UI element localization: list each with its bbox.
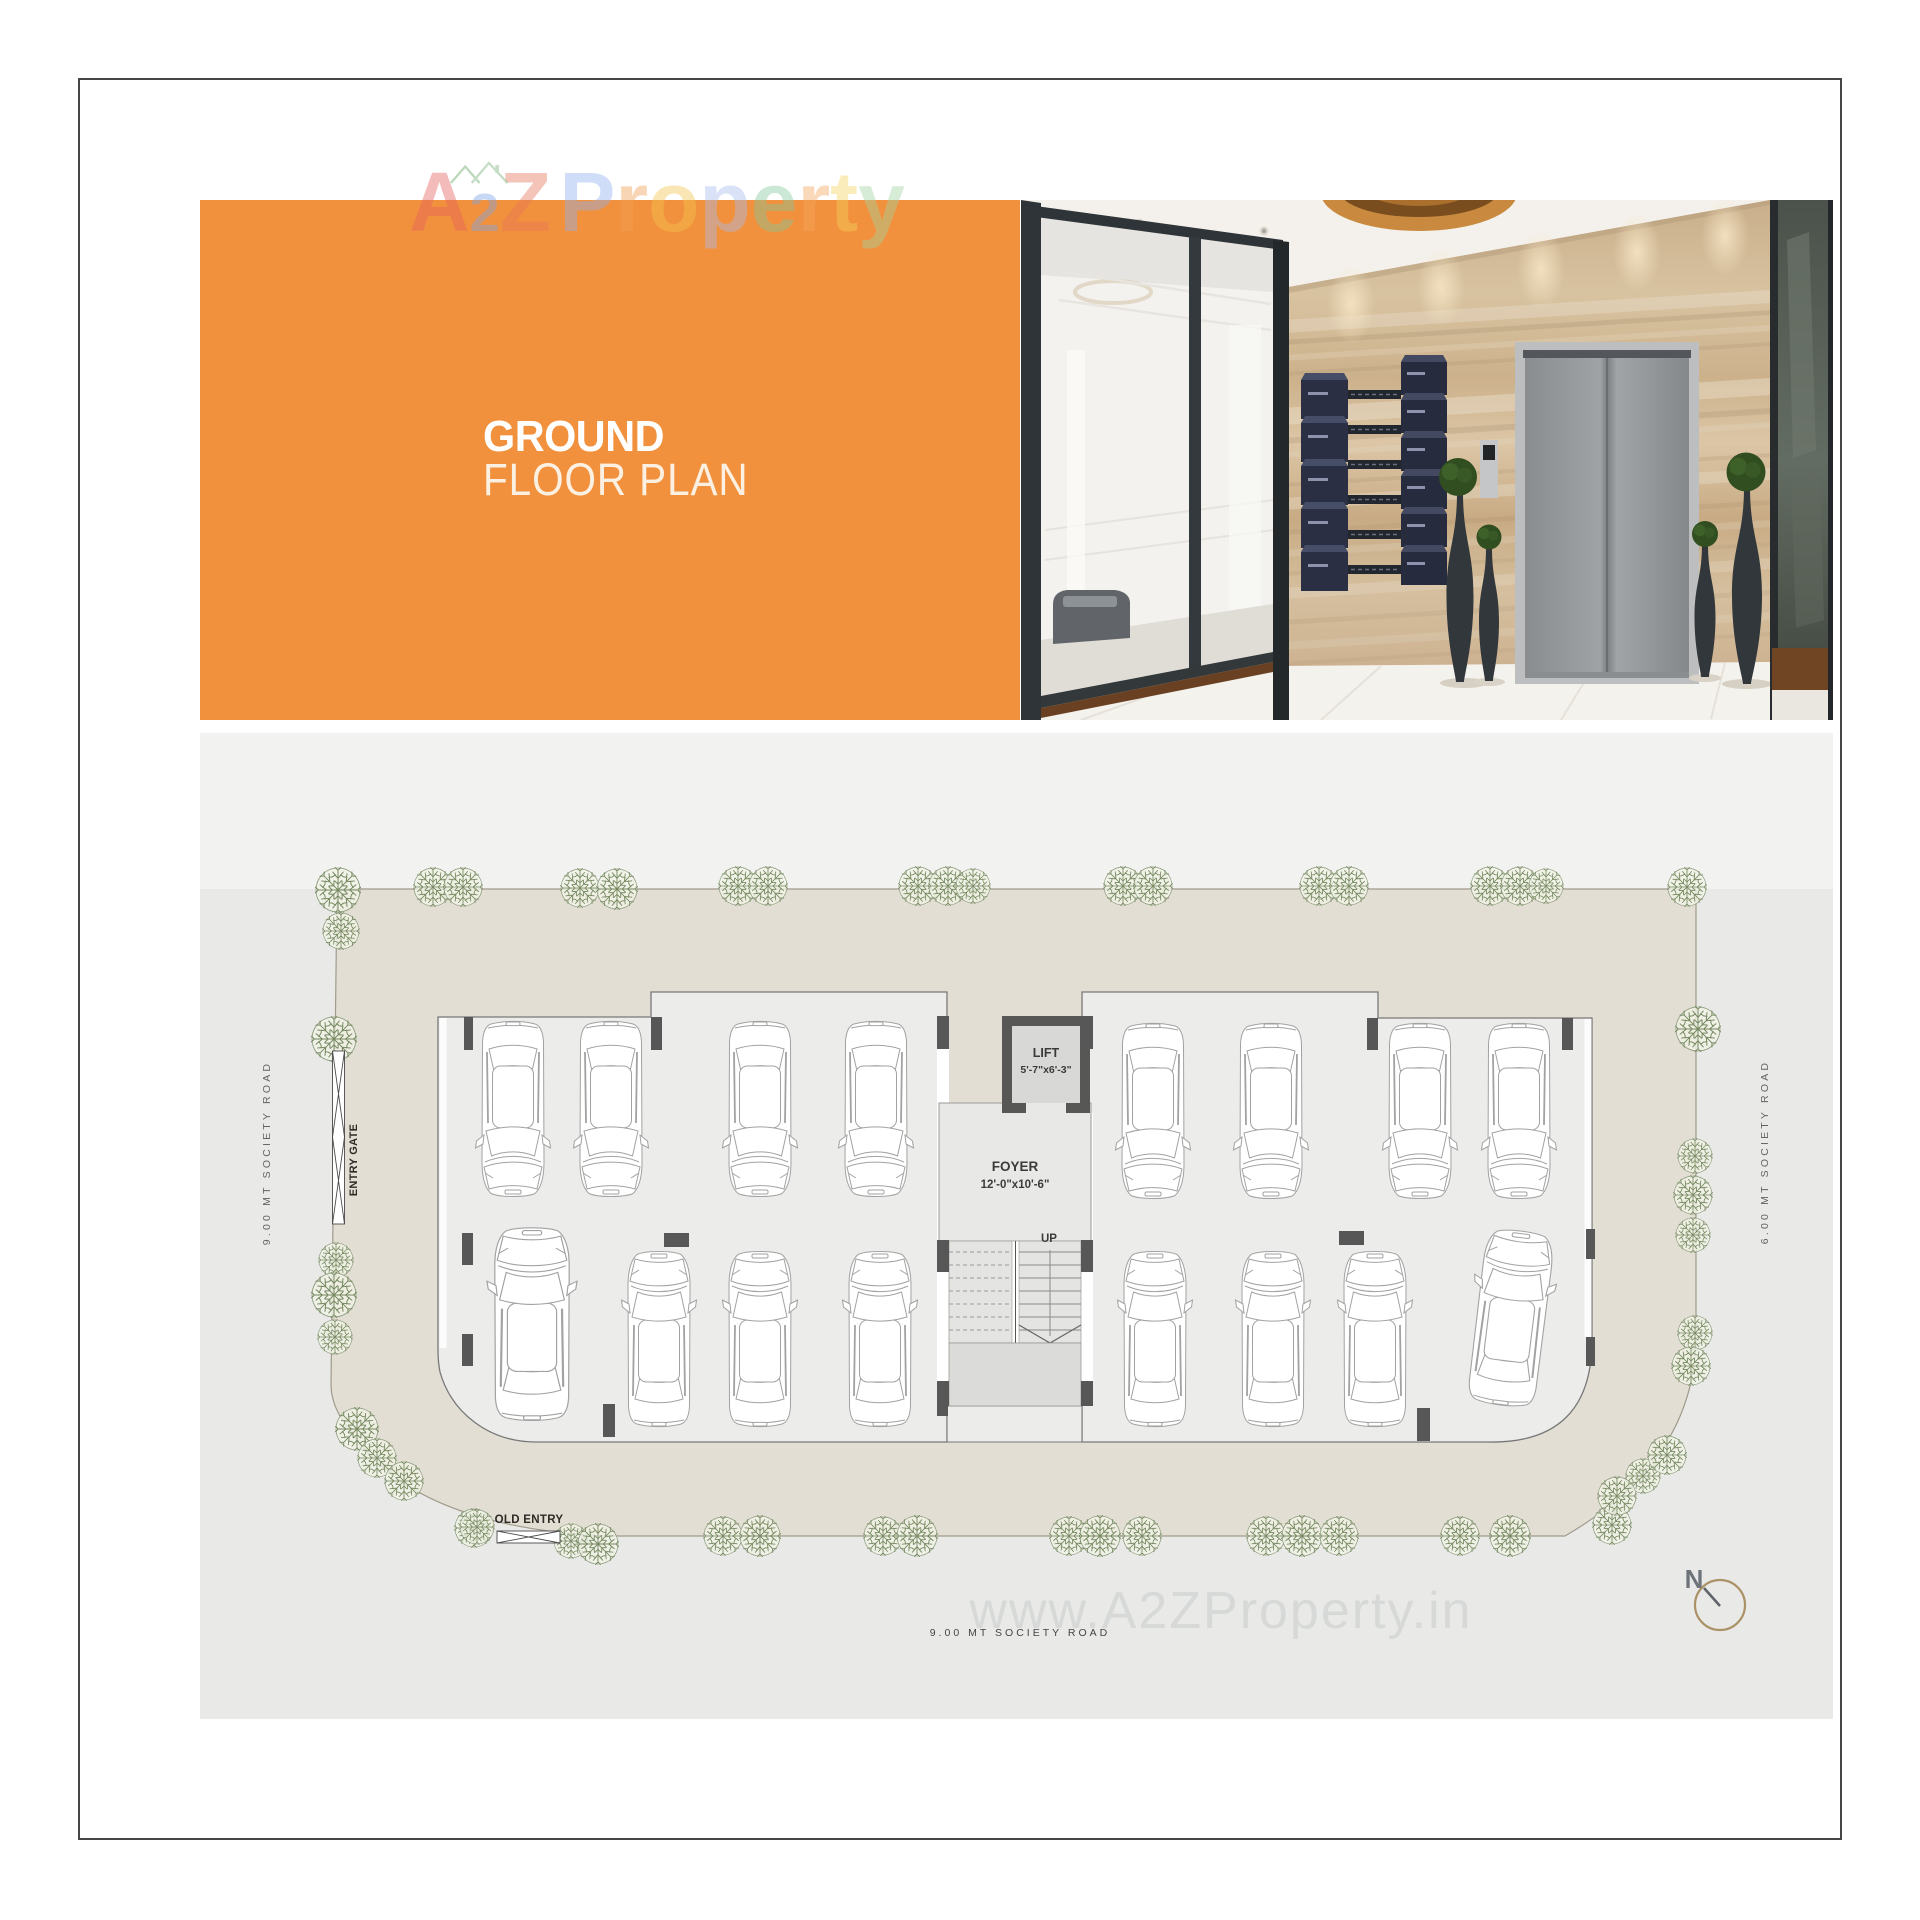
svg-text:9.00 MT SOCIETY ROAD: 9.00 MT SOCIETY ROAD — [261, 1061, 273, 1245]
svg-text:ENTRY GATE: ENTRY GATE — [348, 1124, 360, 1196]
svg-text:FOYER: FOYER — [992, 1159, 1039, 1174]
svg-text:www.A2ZProperty.in: www.A2ZProperty.in — [968, 1582, 1472, 1640]
svg-text:LIFT: LIFT — [1033, 1046, 1060, 1060]
svg-text:5'-7"x6'-3": 5'-7"x6'-3" — [1020, 1064, 1071, 1076]
svg-text:6.00 MT SOCIETY ROAD: 6.00 MT SOCIETY ROAD — [1759, 1060, 1771, 1244]
svg-text:OLD ENTRY: OLD ENTRY — [495, 1514, 564, 1526]
svg-text:12'-0"x10'-6": 12'-0"x10'-6" — [981, 1179, 1050, 1191]
svg-text:N: N — [1685, 1564, 1704, 1594]
svg-text:UP: UP — [1041, 1233, 1057, 1245]
